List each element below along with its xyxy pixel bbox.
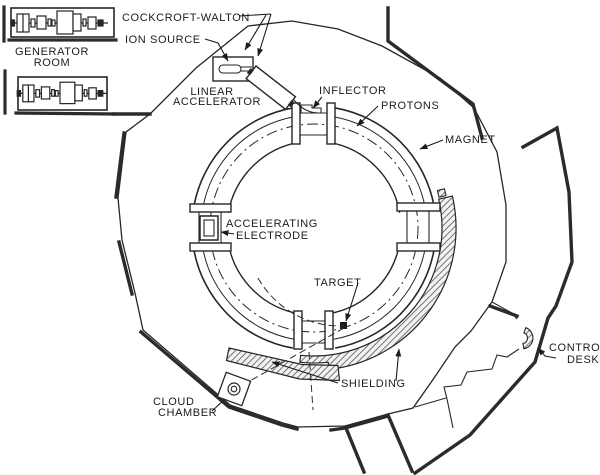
label-control-desk-1: CONTROL xyxy=(549,342,600,354)
generator-room-wall-bottom-2 xyxy=(16,113,114,114)
diagram-canvas: COCKCROFT-WALTON ION SOURCE GENERATOR RO… xyxy=(0,0,600,475)
label-accelerating-electrode-2: ELECTRODE xyxy=(236,230,309,242)
label-target: TARGET xyxy=(314,277,361,289)
label-generator-room-2: ROOM xyxy=(34,57,71,69)
shielding-band-end-tab xyxy=(438,189,447,197)
label-cloud-chamber-2: CHAMBER xyxy=(158,407,217,419)
label-magnet: MAGNET xyxy=(445,134,496,146)
label-protons: PROTONS xyxy=(381,100,439,112)
label-shielding: SHIELDING xyxy=(341,378,406,390)
label-cockcroft-walton: COCKCROFT-WALTON xyxy=(122,12,250,24)
label-inflector: INFLECTOR xyxy=(319,85,387,97)
label-control-desk-2: DESK xyxy=(567,354,599,366)
label-linear-accelerator-2: ACCELERATOR xyxy=(173,96,261,108)
label-ion-source: ION SOURCE xyxy=(125,34,201,46)
label-accelerating-electrode-1: ACCELERATING xyxy=(226,218,318,230)
synchrotron-facility-diagram: COCKCROFT-WALTON ION SOURCE GENERATOR RO… xyxy=(0,0,600,475)
